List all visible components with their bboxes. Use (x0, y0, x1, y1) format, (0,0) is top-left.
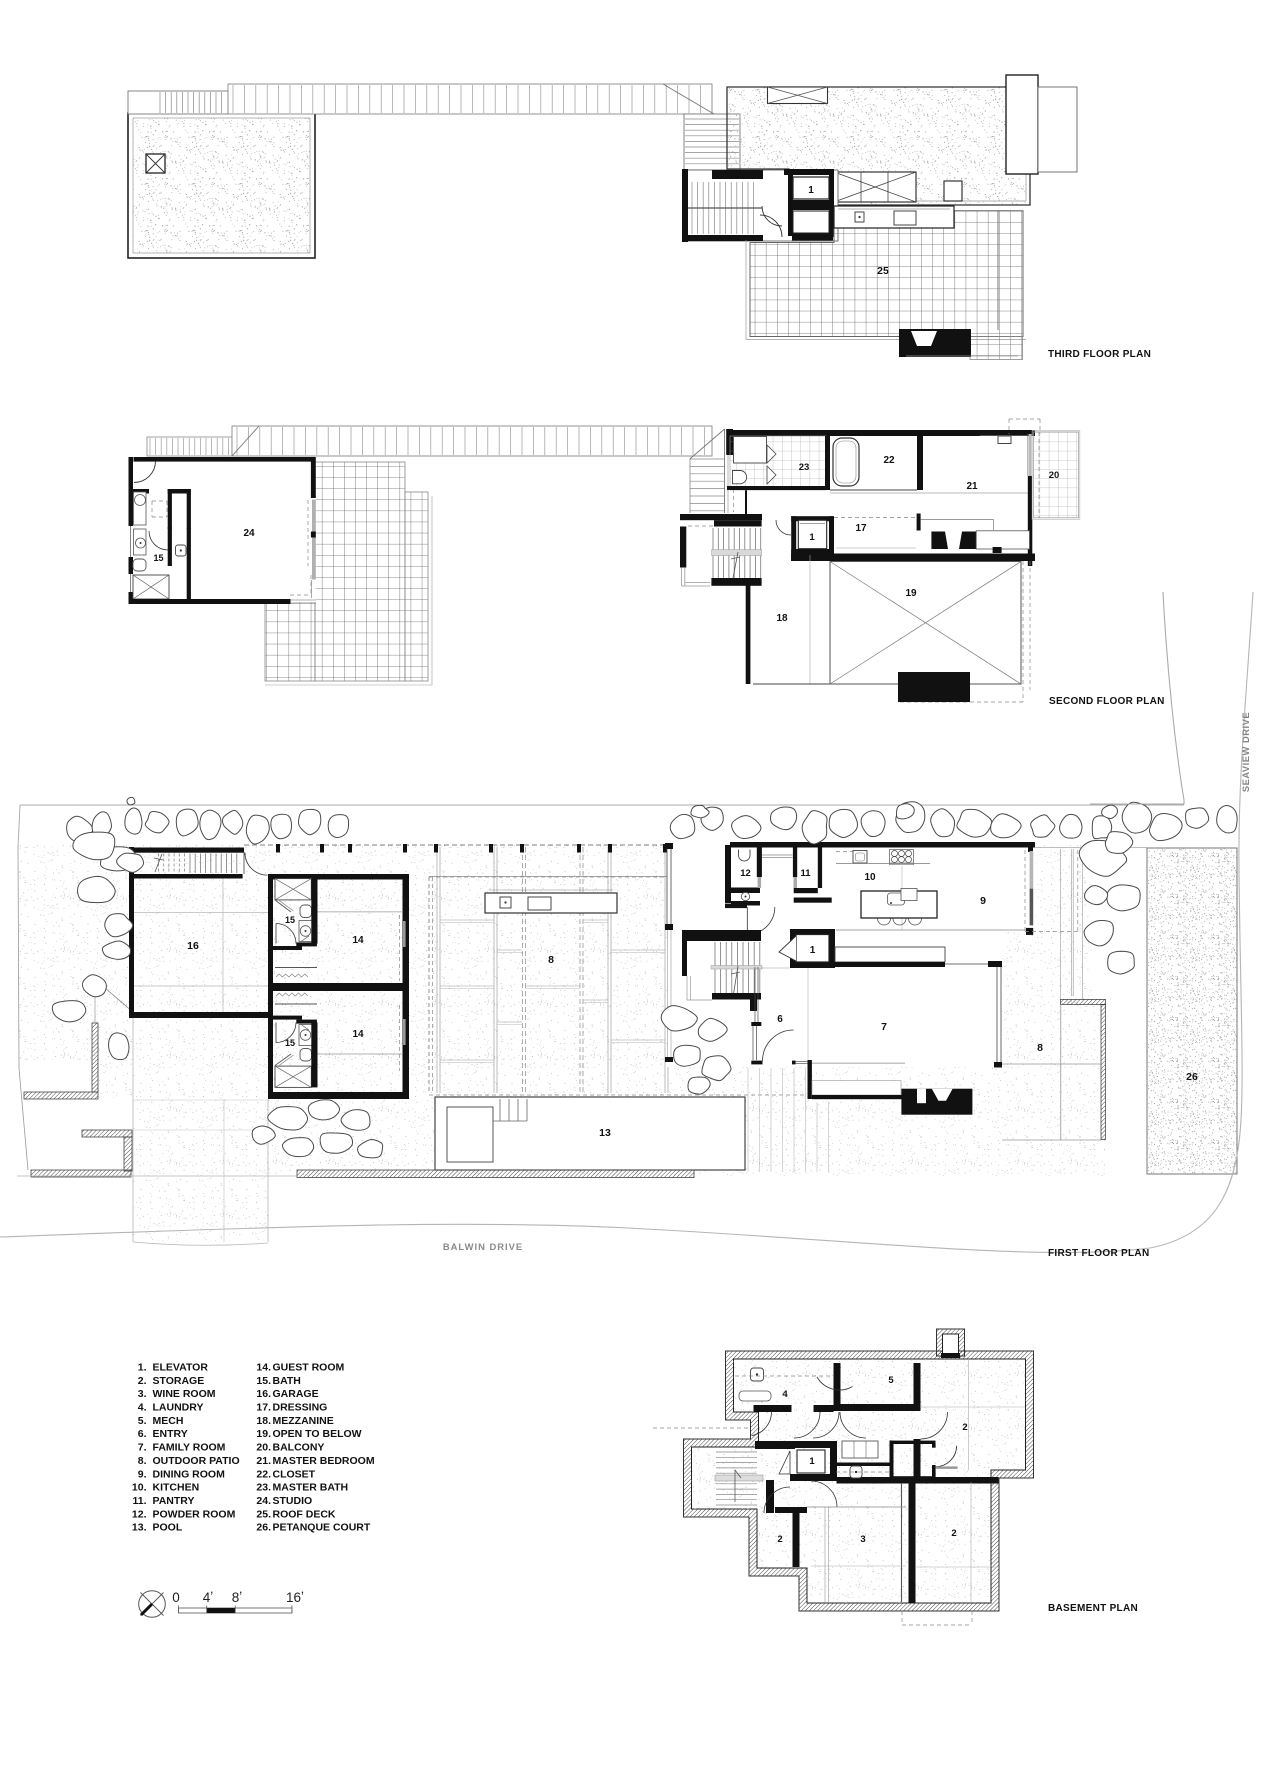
svg-text:7: 7 (881, 1021, 887, 1033)
svg-text:8: 8 (548, 954, 554, 966)
svg-text:6: 6 (777, 1014, 783, 1025)
svg-text:15: 15 (285, 915, 295, 925)
svg-text:GUEST ROOM: GUEST ROOM (273, 1362, 345, 1374)
svg-text:POWDER ROOM: POWDER ROOM (153, 1508, 236, 1520)
svg-text:15: 15 (153, 553, 163, 563)
svg-text:18: 18 (776, 613, 788, 624)
svg-text:14: 14 (352, 1029, 364, 1040)
svg-text:SEAVIEW DRIVE: SEAVIEW DRIVE (1240, 712, 1251, 792)
svg-text:14: 14 (352, 935, 364, 946)
svg-text:16.: 16. (256, 1388, 271, 1400)
svg-text:FAMILY ROOM: FAMILY ROOM (153, 1442, 226, 1454)
svg-text:20.: 20. (256, 1442, 271, 1454)
svg-text:3.: 3. (138, 1388, 147, 1400)
svg-text:22: 22 (883, 455, 895, 466)
svg-text:11.: 11. (132, 1495, 146, 1507)
svg-text:STORAGE: STORAGE (153, 1375, 205, 1387)
svg-text:2: 2 (777, 1534, 782, 1545)
svg-text:10: 10 (864, 872, 876, 883)
svg-text:26.: 26. (256, 1522, 271, 1534)
svg-text:8.: 8. (138, 1455, 147, 1467)
svg-text:BASEMENT PLAN: BASEMENT PLAN (1048, 1603, 1138, 1614)
svg-text:9.: 9. (138, 1468, 147, 1480)
svg-text:DINING ROOM: DINING ROOM (153, 1468, 226, 1480)
svg-text:15.: 15. (256, 1375, 271, 1387)
svg-text:MEZZANINE: MEZZANINE (273, 1415, 334, 1427)
svg-text:4: 4 (782, 1389, 788, 1400)
svg-text:12.: 12. (132, 1508, 147, 1520)
svg-text:24: 24 (243, 528, 255, 539)
svg-text:2.: 2. (138, 1375, 147, 1387)
svg-text:ROOF DECK: ROOF DECK (273, 1508, 336, 1520)
svg-text:23.: 23. (256, 1482, 271, 1494)
svg-text:25.: 25. (256, 1508, 271, 1520)
svg-text:BATH: BATH (273, 1375, 301, 1387)
svg-text:19.: 19. (256, 1428, 271, 1440)
svg-text:ENTRY: ENTRY (153, 1428, 188, 1440)
svg-text:13.: 13. (132, 1522, 147, 1534)
svg-text:MECH: MECH (153, 1415, 184, 1427)
svg-text:1: 1 (809, 532, 815, 543)
svg-text:7.: 7. (138, 1442, 147, 1454)
svg-text:17: 17 (855, 523, 867, 534)
svg-text:5: 5 (888, 1375, 894, 1386)
svg-text:GARAGE: GARAGE (273, 1388, 319, 1400)
svg-text:22.: 22. (256, 1468, 271, 1480)
svg-text:BALWIN DRIVE: BALWIN DRIVE (443, 1241, 523, 1252)
svg-text:4ʼ: 4ʼ (203, 1590, 214, 1605)
svg-text:CLOSET: CLOSET (273, 1468, 316, 1480)
svg-text:6.: 6. (138, 1428, 147, 1440)
svg-text:POOL: POOL (153, 1522, 183, 1534)
svg-text:10.: 10. (132, 1482, 147, 1494)
svg-text:23: 23 (799, 462, 810, 473)
svg-text:MASTER BATH: MASTER BATH (273, 1482, 349, 1494)
svg-text:LAUNDRY: LAUNDRY (153, 1402, 204, 1414)
svg-text:5.: 5. (138, 1415, 147, 1427)
svg-text:8ʼ: 8ʼ (232, 1590, 243, 1605)
svg-text:SECOND FLOOR PLAN: SECOND FLOOR PLAN (1049, 696, 1165, 707)
svg-text:PETANQUE COURT: PETANQUE COURT (273, 1522, 371, 1534)
svg-text:MASTER BEDROOM: MASTER BEDROOM (273, 1455, 375, 1467)
svg-text:THIRD FLOOR PLAN: THIRD FLOOR PLAN (1048, 349, 1151, 360)
svg-text:2: 2 (951, 1528, 956, 1539)
svg-text:DRESSING: DRESSING (273, 1402, 328, 1414)
svg-text:8: 8 (1037, 1042, 1043, 1054)
svg-text:4.: 4. (138, 1402, 147, 1414)
svg-text:STUDIO: STUDIO (273, 1495, 313, 1507)
svg-text:26: 26 (1186, 1071, 1198, 1083)
svg-text:18.: 18. (256, 1415, 271, 1427)
svg-text:25: 25 (877, 265, 889, 277)
svg-text:21: 21 (966, 481, 978, 492)
svg-text:9: 9 (980, 895, 986, 907)
svg-text:13: 13 (599, 1127, 611, 1139)
svg-text:3: 3 (860, 1534, 865, 1545)
svg-text:ELEVATOR: ELEVATOR (153, 1362, 209, 1374)
svg-text:21.: 21. (256, 1455, 271, 1467)
svg-text:FIRST FLOOR PLAN: FIRST FLOOR PLAN (1048, 1248, 1149, 1259)
svg-text:OUTDOOR PATIO: OUTDOOR PATIO (153, 1455, 240, 1467)
svg-text:16ʼ: 16ʼ (286, 1590, 304, 1605)
svg-text:2: 2 (962, 1422, 967, 1433)
svg-text:OPEN TO BELOW: OPEN TO BELOW (273, 1428, 362, 1440)
svg-text:17.: 17. (256, 1402, 271, 1414)
svg-text:0: 0 (172, 1590, 180, 1605)
svg-text:KITCHEN: KITCHEN (153, 1482, 200, 1494)
svg-text:1.: 1. (138, 1362, 147, 1374)
svg-text:WINE ROOM: WINE ROOM (153, 1388, 216, 1400)
svg-text:1: 1 (810, 945, 816, 956)
svg-text:14.: 14. (256, 1362, 271, 1374)
svg-text:16: 16 (187, 940, 199, 952)
svg-text:19: 19 (905, 588, 917, 599)
svg-text:BALCONY: BALCONY (273, 1442, 325, 1454)
svg-text:11: 11 (800, 868, 811, 879)
svg-text:24.: 24. (256, 1495, 271, 1507)
svg-text:1: 1 (808, 185, 814, 196)
svg-text:12: 12 (740, 868, 751, 879)
svg-text:20: 20 (1049, 470, 1060, 481)
svg-text:PANTRY: PANTRY (153, 1495, 195, 1507)
svg-text:1: 1 (809, 1456, 815, 1467)
